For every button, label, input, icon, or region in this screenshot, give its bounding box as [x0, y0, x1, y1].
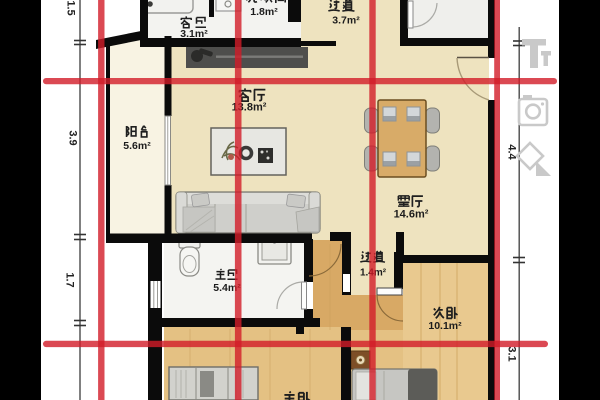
svg-text:1.5: 1.5: [65, 0, 77, 15]
svg-text:3.1m²: 3.1m²: [180, 28, 208, 40]
svg-text:3.9: 3.9: [67, 130, 79, 145]
svg-text:5.6m²: 5.6m²: [123, 140, 151, 152]
svg-text:1.8m²: 1.8m²: [250, 6, 278, 18]
svg-text:4.4: 4.4: [506, 144, 518, 160]
svg-text:3.7m²: 3.7m²: [332, 15, 360, 27]
svg-text:14.6m²: 14.6m²: [394, 209, 429, 221]
svg-text:1.7: 1.7: [64, 272, 76, 287]
svg-text:10.1m²: 10.1m²: [428, 320, 462, 332]
svg-text:3.1: 3.1: [506, 346, 518, 361]
